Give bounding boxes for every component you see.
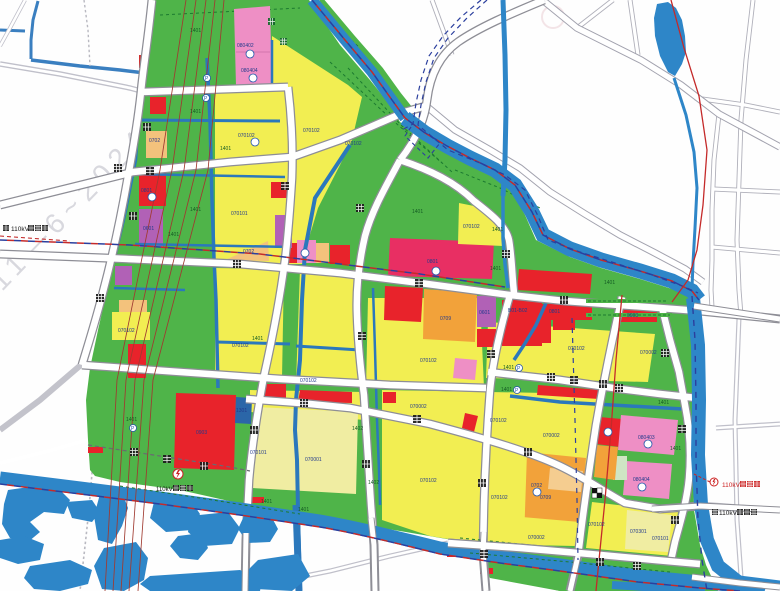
svg-text:080404: 080404 — [633, 477, 650, 483]
svg-text:0903: 0903 — [196, 430, 207, 436]
svg-text:0601: 0601 — [143, 226, 154, 232]
svg-text:070102: 070102 — [118, 328, 135, 334]
svg-text:1401: 1401 — [190, 28, 201, 34]
svg-text:080404: 080404 — [241, 68, 258, 74]
svg-text:1401: 1401 — [503, 365, 514, 371]
svg-text:070102: 070102 — [463, 224, 480, 230]
svg-text:070102: 070102 — [345, 141, 362, 147]
svg-text:070002: 070002 — [543, 433, 560, 439]
svg-text:1401: 1401 — [220, 146, 231, 152]
svg-text:0709: 0709 — [440, 316, 451, 322]
svg-text:1401: 1401 — [670, 446, 681, 452]
svg-text:1401: 1401 — [261, 499, 272, 505]
svg-text:110kV: 110kV — [722, 482, 741, 489]
svg-text:070101: 070101 — [250, 450, 267, 456]
svg-text:070102: 070102 — [238, 133, 255, 139]
svg-text:1401: 1401 — [604, 280, 615, 286]
svg-text:070102: 070102 — [232, 343, 249, 349]
svg-text:1401: 1401 — [658, 400, 669, 406]
svg-text:070101: 070101 — [652, 536, 669, 542]
svg-text:070002: 070002 — [528, 535, 545, 541]
svg-text:070102: 070102 — [568, 346, 585, 352]
svg-text:080402: 080402 — [237, 43, 254, 49]
svg-text:1401: 1401 — [492, 227, 503, 233]
svg-text:0801: 0801 — [549, 309, 560, 315]
svg-text:0903: 0903 — [627, 313, 638, 319]
svg-text:070102: 070102 — [490, 418, 507, 424]
svg-text:1401: 1401 — [412, 209, 423, 215]
svg-text:1301: 1301 — [236, 408, 247, 414]
svg-text:070102: 070102 — [588, 522, 605, 528]
svg-text:0601: 0601 — [479, 310, 490, 316]
svg-text:B01-B02: B01-B02 — [508, 308, 528, 314]
svg-text:0801: 0801 — [427, 259, 438, 265]
svg-text:070301: 070301 — [630, 529, 647, 535]
svg-text:070102: 070102 — [300, 378, 317, 384]
svg-text:070101: 070101 — [231, 211, 248, 217]
svg-text:070002: 070002 — [640, 350, 657, 356]
svg-text:070102: 070102 — [491, 495, 508, 501]
svg-text:070002: 070002 — [410, 404, 427, 410]
svg-text:1401: 1401 — [168, 232, 179, 238]
svg-text:0702: 0702 — [243, 249, 254, 255]
svg-text:1401: 1401 — [501, 387, 512, 393]
svg-text:110kV: 110kV — [11, 226, 30, 233]
svg-text:1401: 1401 — [126, 417, 137, 423]
svg-text:0702: 0702 — [149, 138, 160, 144]
svg-text:1401: 1401 — [252, 336, 263, 342]
svg-text:1401: 1401 — [190, 109, 201, 115]
svg-text:070102: 070102 — [420, 358, 437, 364]
svg-text:1401: 1401 — [490, 266, 501, 272]
svg-text:110kV: 110kV — [719, 510, 738, 517]
svg-text:1401: 1401 — [298, 507, 309, 513]
svg-text:070102: 070102 — [420, 478, 437, 484]
svg-text:070102: 070102 — [303, 128, 320, 134]
svg-text:0709: 0709 — [540, 495, 551, 501]
svg-text:1402: 1402 — [368, 480, 379, 486]
svg-text:1402: 1402 — [352, 426, 363, 432]
svg-text:110kV: 110kV — [156, 487, 173, 493]
svg-text:1401: 1401 — [190, 207, 201, 213]
svg-text:070001: 070001 — [305, 457, 322, 463]
